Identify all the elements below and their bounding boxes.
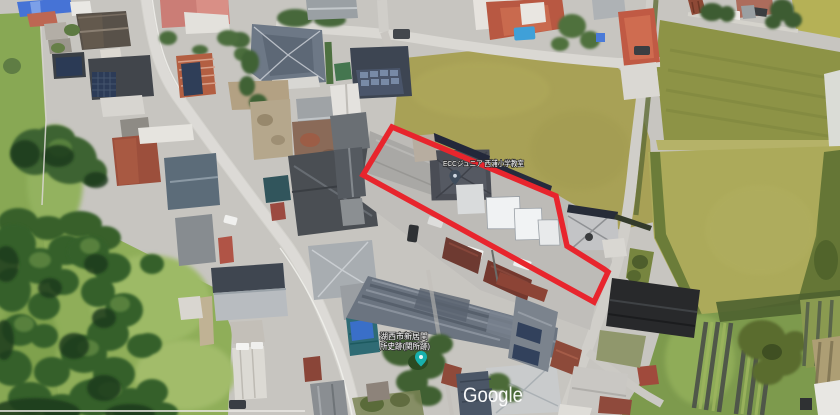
- svg-text:Google: Google: [463, 384, 523, 407]
- svg-text:ECCジュニア 西浦小学教室: ECCジュニア 西浦小学教室: [443, 159, 524, 168]
- svg-text:湖西市新居関: 湖西市新居関: [380, 331, 428, 341]
- svg-text:所史跡(関所跡): 所史跡(関所跡): [380, 341, 430, 351]
